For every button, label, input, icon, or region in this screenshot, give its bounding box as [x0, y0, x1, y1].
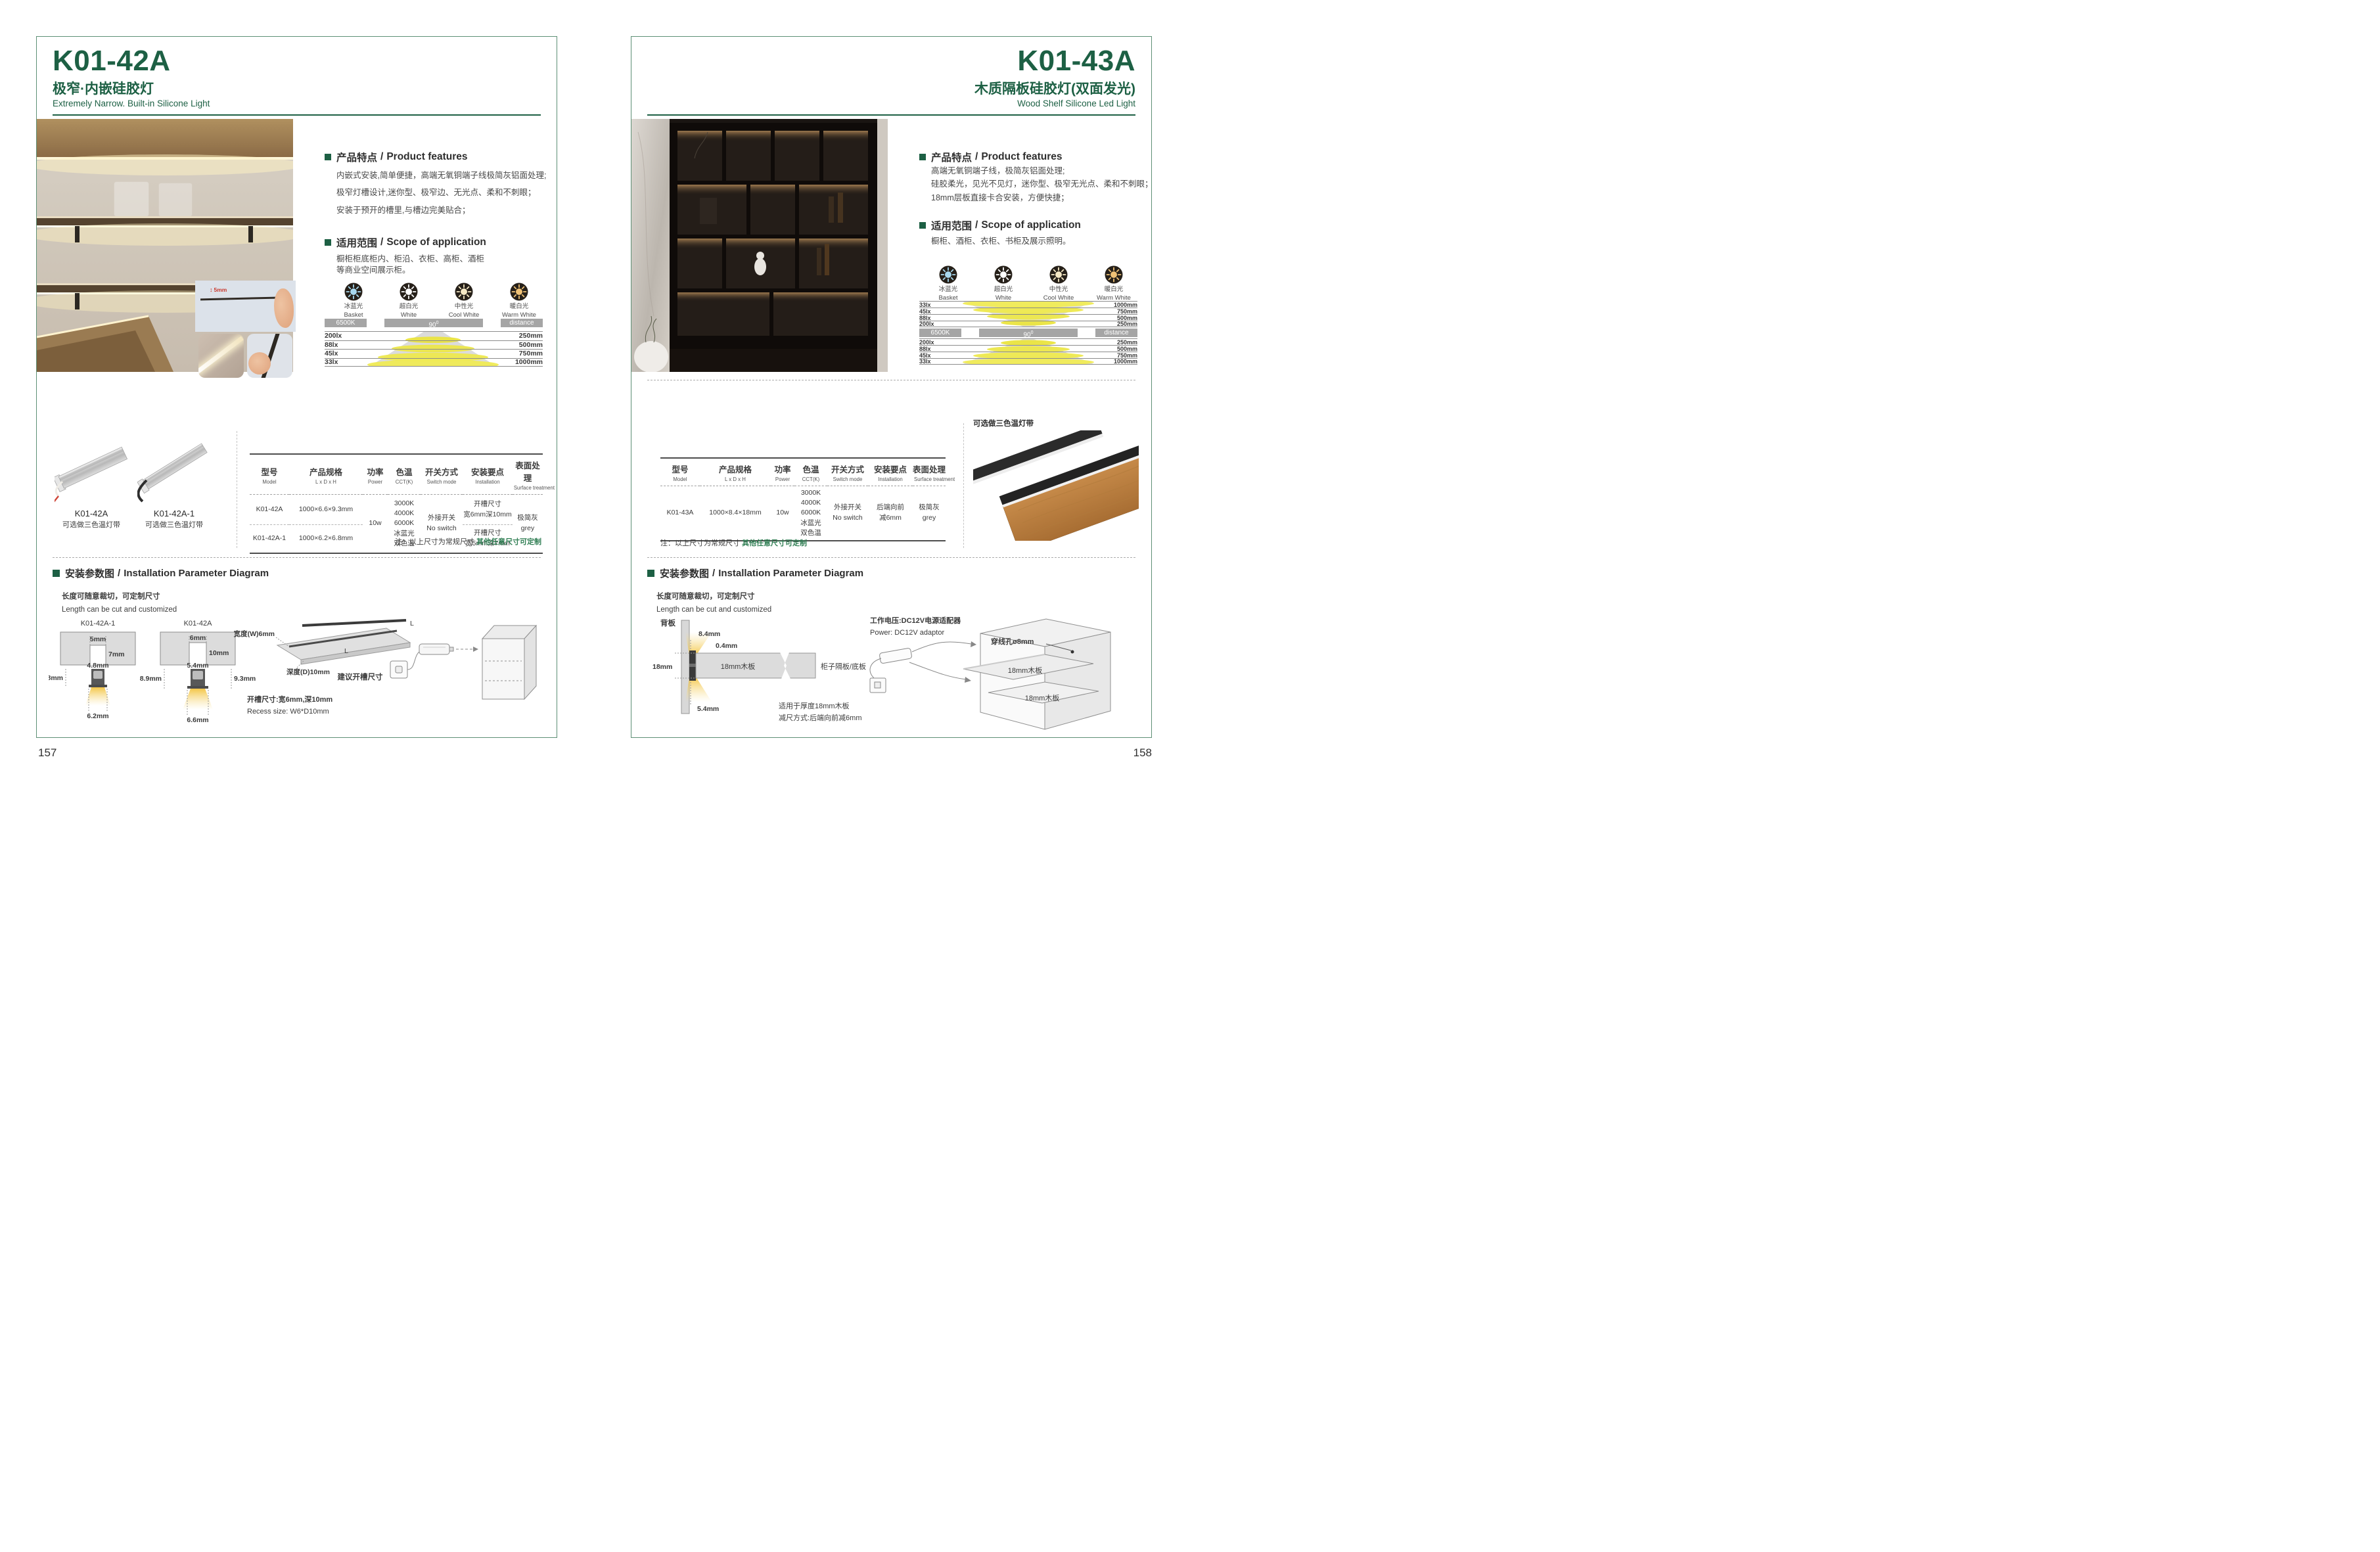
figure-note: 可选做三色温灯带	[135, 519, 213, 530]
header-zh: 开关方式	[827, 463, 868, 475]
page-number-left: 157	[38, 746, 57, 760]
diagram-note2: 减尺方式:后端向前减6mm	[779, 713, 862, 722]
cell-model: K01-42A	[250, 495, 289, 525]
light-color-zh: 冰蓝光	[927, 286, 969, 294]
lux-row: 200lx250mm	[325, 331, 543, 340]
catalog-page-right: K01-43A 木质隔板硅胶灯(双面发光) Wood Shelf Silicon…	[631, 36, 1152, 738]
dim-lamp-width: 5.4mm	[187, 662, 208, 670]
header-en: Power	[364, 478, 387, 484]
diagram-title: K01-42A-1	[81, 620, 116, 628]
feature-line: 高端无氧铜端子线，极简灰铝面处理;	[931, 164, 1152, 177]
scope-title-en: Scope of application	[981, 219, 1081, 231]
feature-line: 极窄灯槽设计,迷你型、极窄边、无光点、柔和不刺眼；	[336, 184, 546, 201]
distance-value: 250mm	[519, 332, 543, 340]
dim-lamp-bottom: 6.2mm	[87, 712, 108, 720]
distance-chip: distance	[501, 319, 543, 327]
figure-name: K01-42A-1	[135, 509, 213, 518]
install-title-zh: 安装参数图	[65, 566, 114, 580]
lux-row: 33lx1000mm	[919, 358, 1137, 365]
header-en: Switch mode	[423, 478, 461, 484]
dim-lamp-width: 4.8mm	[87, 662, 108, 670]
title-separator: /	[975, 151, 978, 163]
profile-figure: K01-42A 可选做三色温灯带	[53, 433, 130, 530]
light-color-icons: 冰蓝光 Basket 超白光 White	[332, 283, 540, 320]
switch-en: No switch	[833, 513, 863, 524]
spec-header-cell: 安装要点Installation	[463, 455, 513, 495]
feature-line: 安装于预开的槽里,与槽边完美贴合；	[336, 202, 546, 219]
dim-lamp-bottom: 6.6mm	[187, 716, 208, 724]
cell-install: 后端向前 减6mm	[868, 486, 913, 540]
header-rule	[647, 114, 1135, 116]
header-en: Model	[251, 478, 287, 484]
header-zh: 型号	[250, 465, 289, 478]
aluminum-profile-art	[55, 433, 128, 505]
header-zh: 表面处理	[913, 463, 946, 475]
distance-value: 1000mm	[1114, 358, 1137, 365]
dim-slot-depth: 10mm	[209, 649, 229, 657]
lux-value: 45lx	[919, 308, 931, 315]
lux-row: 45lx750mm	[325, 349, 543, 358]
install-title-zh: 安装参数图	[660, 566, 709, 580]
page-header: K01-43A 木质隔板硅胶灯(双面发光) Wood Shelf Silicon…	[647, 46, 1135, 108]
cct-line: 3000K	[394, 499, 414, 509]
dim-lamp-height2: 9.3mm	[234, 675, 256, 683]
section-divider	[53, 557, 541, 558]
surface-en: grey	[923, 513, 936, 524]
light-color-option: 中性光 Cool White	[443, 283, 485, 320]
black-profile-art	[973, 430, 1139, 541]
aluminum-profile-art	[137, 433, 211, 505]
lux-value: 200lx	[919, 339, 934, 346]
lux-row: 45lx750mm	[919, 352, 1137, 358]
install-title-en: Installation Parameter Diagram	[718, 568, 863, 579]
cell-size: 1000×6.2×6.8mm	[289, 525, 363, 553]
header-en: Power	[771, 476, 793, 482]
cell-install: 开槽尺寸 宽6mm深10mm	[463, 495, 513, 525]
install-title: 安装参数图 / Installation Parameter Diagram	[647, 566, 863, 580]
cell-power: 10w	[363, 495, 388, 553]
product-photo	[631, 119, 888, 372]
power-label-zh: 工作电压:DC12V电源适配器	[870, 616, 961, 625]
vertical-divider	[963, 423, 964, 548]
switch-en: No switch	[426, 524, 457, 534]
cct-line: 6000K	[801, 508, 821, 518]
cut-note-zh: 长度可随意裁切，可定制尺寸	[656, 590, 771, 603]
chart-header-chips: 6500K 900 distance	[325, 319, 543, 327]
cell-size: 1000×6.6×9.3mm	[289, 495, 363, 525]
table-note: 注：以上尺寸为常规尺寸 其他任意尺寸可定制	[395, 536, 541, 547]
recess-size-en: Recess size: W6*D10mm	[247, 708, 329, 716]
catalog-page-left: K01-42A 极窄·内嵌硅胶灯 Extremely Narrow. Built…	[36, 36, 557, 738]
figure-note: 可选做三色温灯带	[973, 418, 1139, 428]
back-panel-label: 背板	[660, 618, 675, 628]
lux-value: 45lx	[919, 352, 931, 359]
distance-value: 500mm	[1117, 346, 1137, 352]
features-title-en: Product features	[386, 151, 467, 163]
dim-gap: 0.4mm	[716, 642, 737, 650]
lux-value: 88lx	[919, 315, 931, 321]
header-zh: 功率	[363, 465, 388, 478]
title-separator: /	[118, 568, 120, 579]
features-title: 产品特点 / Product features	[919, 150, 1063, 164]
scope-title: 适用范围 / Scope of application	[325, 235, 486, 250]
title-separator: /	[380, 237, 383, 248]
scope-title: 适用范围 / Scope of application	[919, 218, 1081, 233]
header-zh: 功率	[771, 463, 794, 475]
scope-text: 橱柜、酒柜、衣柜、书柜及展示照明。	[931, 236, 1071, 247]
spec-header-cell: 色温CCT(K)	[388, 455, 421, 495]
features-text: 高端无氧铜端子线，极简灰铝面处理; 硅胶柔光，见光不见灯，迷你型、极窄无光点、柔…	[931, 164, 1152, 204]
spec-header-cell: 色温CCT(K)	[794, 459, 827, 486]
length-label-mid: L	[344, 647, 348, 655]
distance-value: 750mm	[1117, 352, 1137, 359]
spec-table: 型号Model 产品规格L x D x H 功率Power 色温CCT(K) 开…	[660, 457, 946, 541]
features-title-en: Product features	[981, 151, 1062, 163]
title-separator: /	[975, 219, 978, 231]
spec-header-cell: 型号Model	[250, 455, 289, 495]
cell-cct: 3000K 4000K 6000K 冰蓝光 双色温	[794, 486, 827, 540]
distance-value: 750mm	[519, 350, 543, 357]
installation-diagram: 背板 18mm木板 柜子隔板/底板 8.4mm 0.4mm 18mm 5.4mm…	[643, 610, 1141, 736]
header-en: L x D x H	[702, 476, 767, 482]
content-divider	[647, 380, 1135, 380]
recess-size-zh: 开槽尺寸:宽6mm,深10mm	[247, 695, 332, 704]
lux-row: 200lx250mm	[919, 321, 1137, 327]
dimension-label: ↕5mm	[210, 286, 227, 293]
lux-row: 88lx500mm	[919, 314, 1137, 321]
wire-hole-label: 穿线孔ø8mm	[991, 637, 1034, 646]
note-highlight: 其他任意尺寸可定制	[742, 539, 807, 547]
light-color-icons: 冰蓝光 Basket 超白光 White	[927, 265, 1135, 303]
spec-header-cell: 功率Power	[771, 459, 794, 486]
section-bullet	[53, 570, 60, 577]
lux-rows: 200lx250mm 88lx500mm 45lx750mm 33lx1000m…	[325, 331, 543, 367]
light-color-option: 暖白光 Warm White	[1093, 265, 1135, 303]
distance-chip: distance	[1095, 329, 1137, 337]
header-en: Installation	[465, 478, 511, 484]
spec-header-cell: 开关方式Switch mode	[827, 459, 868, 486]
product-title-zh: 木质隔板硅胶灯(双面发光)	[647, 78, 1135, 98]
features-title-zh: 产品特点	[336, 150, 377, 164]
cct-line: 冰蓝光	[800, 518, 821, 528]
distance-value: 250mm	[1117, 321, 1137, 327]
product-model-title: K01-42A	[53, 46, 541, 76]
distance-value: 500mm	[1117, 315, 1137, 321]
cct-chip: 6500K	[325, 319, 367, 327]
cell-switch: 外接开关 No switch	[827, 486, 868, 540]
angle-chip: 900	[979, 329, 1078, 337]
header-en: Surface treatment	[514, 484, 541, 490]
sun-icon	[510, 283, 528, 301]
dim-value: 5mm	[214, 286, 227, 293]
header-zh: 色温	[388, 465, 421, 478]
length-label-top: L	[410, 620, 414, 628]
header-zh: 产品规格	[289, 465, 363, 478]
section-bullet	[647, 570, 654, 577]
section-divider	[647, 557, 1135, 558]
board-label: 18mm木板	[721, 662, 756, 671]
lux-distance-chart: 6500K 900 distance 200lx250mm 88lx500mm …	[325, 319, 543, 367]
surface-en: grey	[521, 524, 534, 534]
cabinet-photo-art	[631, 119, 888, 372]
spec-header-cell: 产品规格L x D x H	[289, 455, 363, 495]
spec-header-cell: 开关方式Switch mode	[421, 455, 463, 495]
lux-value: 200lx	[919, 321, 934, 327]
dim-arrow-icon: ↕	[210, 286, 213, 293]
groove-depth-label: 深度(D)10mm	[286, 668, 330, 676]
lux-value: 33lx	[919, 302, 931, 308]
cct-line: 6000K	[394, 518, 414, 528]
scope-title-zh: 适用范围	[931, 218, 972, 233]
dim-slot-width: 5mm	[90, 635, 106, 643]
sun-icon	[344, 283, 363, 301]
profile-figure: K01-42A-1 可选做三色温灯带	[135, 433, 213, 530]
header-en: Model	[662, 476, 698, 482]
angle-sup: 0	[1031, 331, 1034, 335]
angle-sup: 0	[436, 321, 439, 325]
lux-value: 88lx	[325, 341, 338, 349]
light-color-zh: 中性光	[443, 303, 485, 311]
wood-strip-thumb	[198, 334, 244, 378]
cell-size: 1000×8.4×18mm	[700, 486, 771, 540]
header-zh: 表面处理	[513, 459, 543, 484]
product-title-en: Extremely Narrow. Built-in Silicone Ligh…	[53, 99, 541, 108]
sun-icon	[455, 283, 473, 301]
lux-row: 33lx1000mm	[325, 358, 543, 367]
groove-width-label: 宽度(W)6mm	[233, 629, 275, 638]
lux-value: 33lx	[325, 358, 338, 366]
spec-header-cell: 功率Power	[363, 455, 388, 495]
features-title-zh: 产品特点	[931, 150, 972, 164]
angle-value: 90	[428, 321, 436, 329]
lux-value: 45lx	[325, 350, 338, 357]
surface-zh: 极简灰	[517, 513, 538, 524]
header-zh: 安装要点	[463, 465, 513, 478]
note-prefix: 注：以上尺寸为常规尺寸	[660, 539, 742, 547]
dim-lamp-height: 8.9mm	[140, 675, 162, 683]
install-title-en: Installation Parameter Diagram	[124, 568, 269, 579]
light-color-zh: 冰蓝光	[332, 303, 375, 311]
lux-value: 200lx	[325, 332, 342, 340]
lux-distance-chart-double: 33lx1000mm 45lx750mm 88lx500mm 200lx250m…	[919, 301, 1137, 365]
sun-icon	[1105, 265, 1123, 284]
lux-value: 88lx	[919, 346, 931, 352]
cell-model: K01-42A-1	[250, 525, 289, 553]
distance-value: 1000mm	[515, 358, 543, 366]
header-en: Switch mode	[829, 476, 866, 482]
header-en: CCT(K)	[796, 476, 826, 482]
cell-model: K01-43A	[660, 486, 700, 540]
light-color-option: 冰蓝光 Basket	[927, 265, 969, 303]
title-separator: /	[380, 151, 383, 163]
light-color-option: 中性光 Cool White	[1038, 265, 1080, 303]
cct-line: 3000K	[801, 488, 821, 498]
distance-value: 250mm	[1117, 339, 1137, 346]
lux-row: 88lx500mm	[325, 340, 543, 350]
scope-line: 橱柜、酒柜、衣柜、书柜及展示照明。	[931, 236, 1071, 247]
installation-diagram: K01-42A-1 5mm 7mm 4.8mm 6.8mm 6.2mm K01-…	[49, 610, 547, 736]
angle-chip: 900	[384, 319, 483, 327]
light-color-zh: 超白光	[388, 303, 430, 311]
dim-slot-width: 6mm	[190, 634, 206, 642]
lux-row: 200lx250mm	[919, 338, 1137, 345]
light-color-zh: 暖白光	[1093, 286, 1135, 294]
spec-header-cell: 表面处理Surface treatment	[913, 459, 946, 486]
header-zh: 产品规格	[700, 463, 771, 475]
header-zh: 型号	[660, 463, 700, 475]
header-rule	[53, 114, 541, 116]
lux-row: 33lx1000mm	[919, 301, 1137, 308]
light-color-zh: 中性光	[1038, 286, 1080, 294]
spec-header-cell: 表面处理Surface treatment	[513, 455, 543, 495]
cell-power: 10w	[771, 486, 794, 540]
distance-value: 1000mm	[1114, 302, 1137, 308]
hand-strip-thumb	[247, 334, 292, 378]
shelf-label: 柜子隔板/底板	[821, 662, 866, 671]
lux-rows-top: 33lx1000mm 45lx750mm 88lx500mm 200lx250m…	[919, 301, 1137, 327]
shelf1-label: 18mm木板	[1008, 666, 1043, 675]
distance-value: 750mm	[1117, 308, 1137, 315]
scope-line: 等商业空间展示柜。	[336, 265, 484, 276]
product-title-zh: 极窄·内嵌硅胶灯	[53, 78, 541, 98]
features-text: 内嵌式安装,简单便捷，高端无氧铜端子线极简灰铝面处理; 极窄灯槽设计,迷你型、极…	[336, 167, 546, 219]
dim-bottom: 5.4mm	[697, 705, 719, 713]
lux-row: 88lx500mm	[919, 345, 1137, 352]
spec-header-cell: 产品规格L x D x H	[700, 459, 771, 486]
lux-value: 33lx	[919, 358, 931, 365]
header-en: L x D x H	[292, 478, 359, 484]
light-color-option: 超白光 White	[388, 283, 430, 320]
spec-header-cell: 安装要点Installation	[868, 459, 913, 486]
note-prefix: 注：以上尺寸为常规尺寸	[395, 538, 476, 546]
shelf2-label: 18mm木板	[1025, 693, 1060, 702]
header-zh: 开关方式	[421, 465, 463, 478]
cut-note-zh: 长度可随意裁切，可定制尺寸	[62, 590, 177, 603]
profile-figure: 可选做三色温灯带	[973, 418, 1139, 544]
sun-icon	[994, 265, 1013, 284]
light-color-option: 暖白光 Warm White	[498, 283, 540, 320]
angle-value: 90	[1023, 331, 1030, 338]
light-color-zh: 超白光	[982, 286, 1024, 294]
light-color-option: 超白光 White	[982, 265, 1024, 303]
header-zh: 色温	[794, 463, 827, 475]
distance-value: 500mm	[519, 341, 543, 349]
table-note: 注：以上尺寸为常规尺寸 其他任意尺寸可定制	[660, 537, 807, 548]
scope-text: 橱柜柜底柜内、柜沿、衣柜、高柜、酒柜 等商业空间展示柜。	[336, 254, 484, 277]
header-en: CCT(K)	[389, 478, 419, 484]
cct-line: 双色温	[800, 528, 821, 538]
feature-line: 硅胶柔光，见光不见灯，迷你型、极窄无光点、柔和不刺眼；	[931, 177, 1152, 191]
hand-detail	[274, 288, 294, 328]
header-zh: 安装要点	[868, 463, 913, 475]
product-title-en: Wood Shelf Silicone Led Light	[647, 99, 1135, 108]
cct-line: 4000K	[801, 498, 821, 508]
spec-header-cell: 型号Model	[660, 459, 700, 486]
product-model-title: K01-43A	[647, 46, 1135, 76]
dim-thickness: 18mm	[652, 663, 672, 671]
install-line: 后端向前	[877, 503, 904, 513]
dim-top: 8.4mm	[698, 630, 720, 638]
vertical-divider	[237, 431, 237, 548]
power-label-en: Power: DC12V adaptor	[870, 629, 944, 637]
section-bullet	[919, 222, 926, 229]
features-title: 产品特点 / Product features	[325, 150, 468, 164]
figure-name: K01-42A	[53, 509, 130, 518]
header-en: Installation	[870, 476, 911, 482]
hand-detail	[248, 352, 271, 375]
cell-surface: 极简灰 grey	[913, 486, 946, 540]
sun-icon	[1049, 265, 1068, 284]
switch-zh: 外接开关	[428, 513, 455, 524]
scope-title-zh: 适用范围	[336, 235, 377, 250]
lux-row: 45lx750mm	[919, 308, 1137, 314]
header-en: Surface treatment	[914, 476, 944, 482]
surface-zh: 极简灰	[919, 503, 940, 513]
page-number-right: 158	[1133, 746, 1152, 760]
cct-line: 4000K	[394, 509, 414, 518]
groove-caption: 建议开槽尺寸	[338, 672, 383, 681]
switch-zh: 外接开关	[834, 503, 861, 513]
scope-line: 橱柜柜底柜内、柜沿、衣柜、高柜、酒柜	[336, 254, 484, 265]
feature-line: 18mm层板直接卡合安装，方便快捷；	[931, 191, 1152, 204]
diagram-title: K01-42A	[184, 620, 212, 628]
diagram-note1: 适用于厚度18mm木板	[779, 701, 850, 710]
light-color-option: 冰蓝光 Basket	[332, 283, 375, 320]
light-color-zh: 暖白光	[498, 303, 540, 311]
section-bullet	[325, 239, 331, 246]
sun-icon	[939, 265, 957, 284]
dim-slot-depth: 7mm	[108, 650, 125, 658]
install-line: 宽6mm深10mm	[463, 510, 512, 520]
sun-icon	[400, 283, 418, 301]
note-highlight: 其他任意尺寸可定制	[476, 538, 541, 546]
thickness-inset-photo: ↕5mm	[195, 281, 296, 332]
section-bullet	[919, 154, 926, 160]
title-separator: /	[712, 568, 715, 579]
figure-note: 可选做三色温灯带	[53, 519, 130, 530]
cct-chip: 6500K	[919, 329, 961, 337]
section-bullet	[325, 154, 331, 160]
lit-strip-detail	[198, 336, 244, 376]
install-title: 安装参数图 / Installation Parameter Diagram	[53, 566, 269, 580]
page-header: K01-42A 极窄·内嵌硅胶灯 Extremely Narrow. Built…	[53, 46, 541, 108]
scope-title-en: Scope of application	[386, 237, 486, 248]
install-line: 开槽尺寸	[474, 499, 501, 510]
dim-lamp-height: 6.8mm	[49, 674, 63, 682]
lux-rows-bottom: 200lx250mm 88lx500mm 45lx750mm 33lx1000m…	[919, 338, 1137, 365]
install-line: 减6mm	[879, 513, 902, 524]
feature-line: 内嵌式安装,简单便捷，高端无氧铜端子线极简灰铝面处理;	[336, 167, 546, 184]
strip-detail	[200, 297, 277, 301]
chart-header-chips: 6500K 900 distance	[919, 329, 1137, 337]
